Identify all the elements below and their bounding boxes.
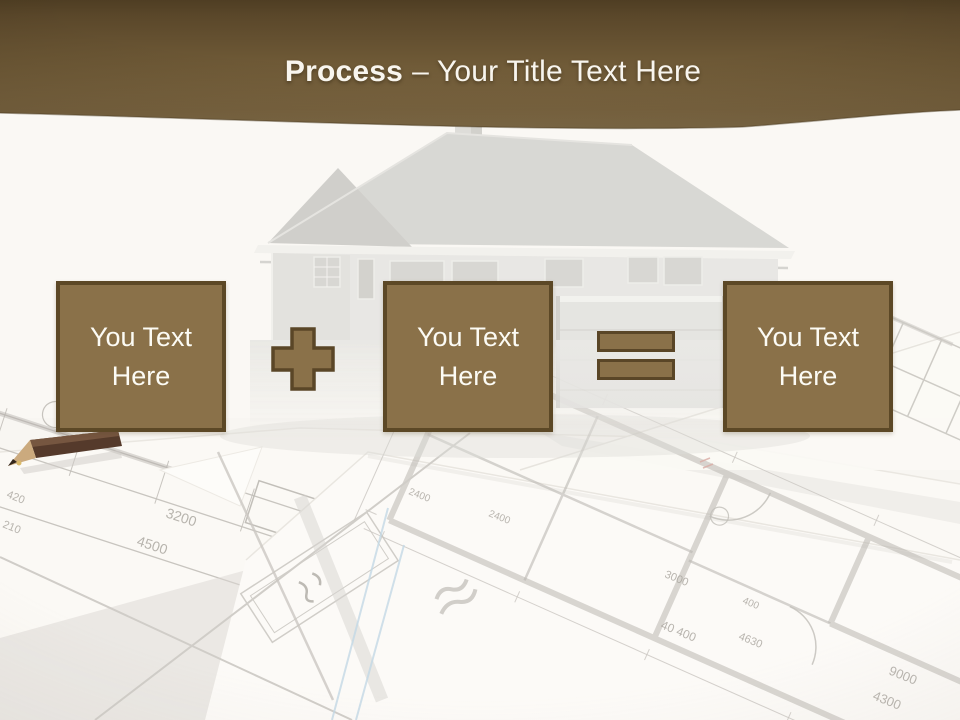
process-box-3[interactable]: You Text Here	[723, 281, 893, 432]
equals-icon[interactable]	[597, 331, 675, 380]
process-box-1[interactable]: You Text Here	[56, 281, 226, 432]
slide-title[interactable]: Process – Your Title Text Here	[0, 54, 960, 90]
process-box-2[interactable]: You Text Here	[383, 281, 553, 432]
equals-bar-top	[597, 331, 675, 352]
process-box-1-label: You Text Here	[60, 318, 222, 396]
process-box-3-label: You Text Here	[727, 318, 889, 396]
equals-bar-bottom	[597, 359, 675, 380]
title-text: – Your Title Text Here	[412, 54, 701, 90]
process-box-2-label: You Text Here	[387, 318, 549, 396]
plus-icon[interactable]	[271, 327, 335, 391]
title-topic: Process	[285, 54, 403, 90]
slide: 3200 4500 420 210 2400 240	[0, 0, 960, 720]
